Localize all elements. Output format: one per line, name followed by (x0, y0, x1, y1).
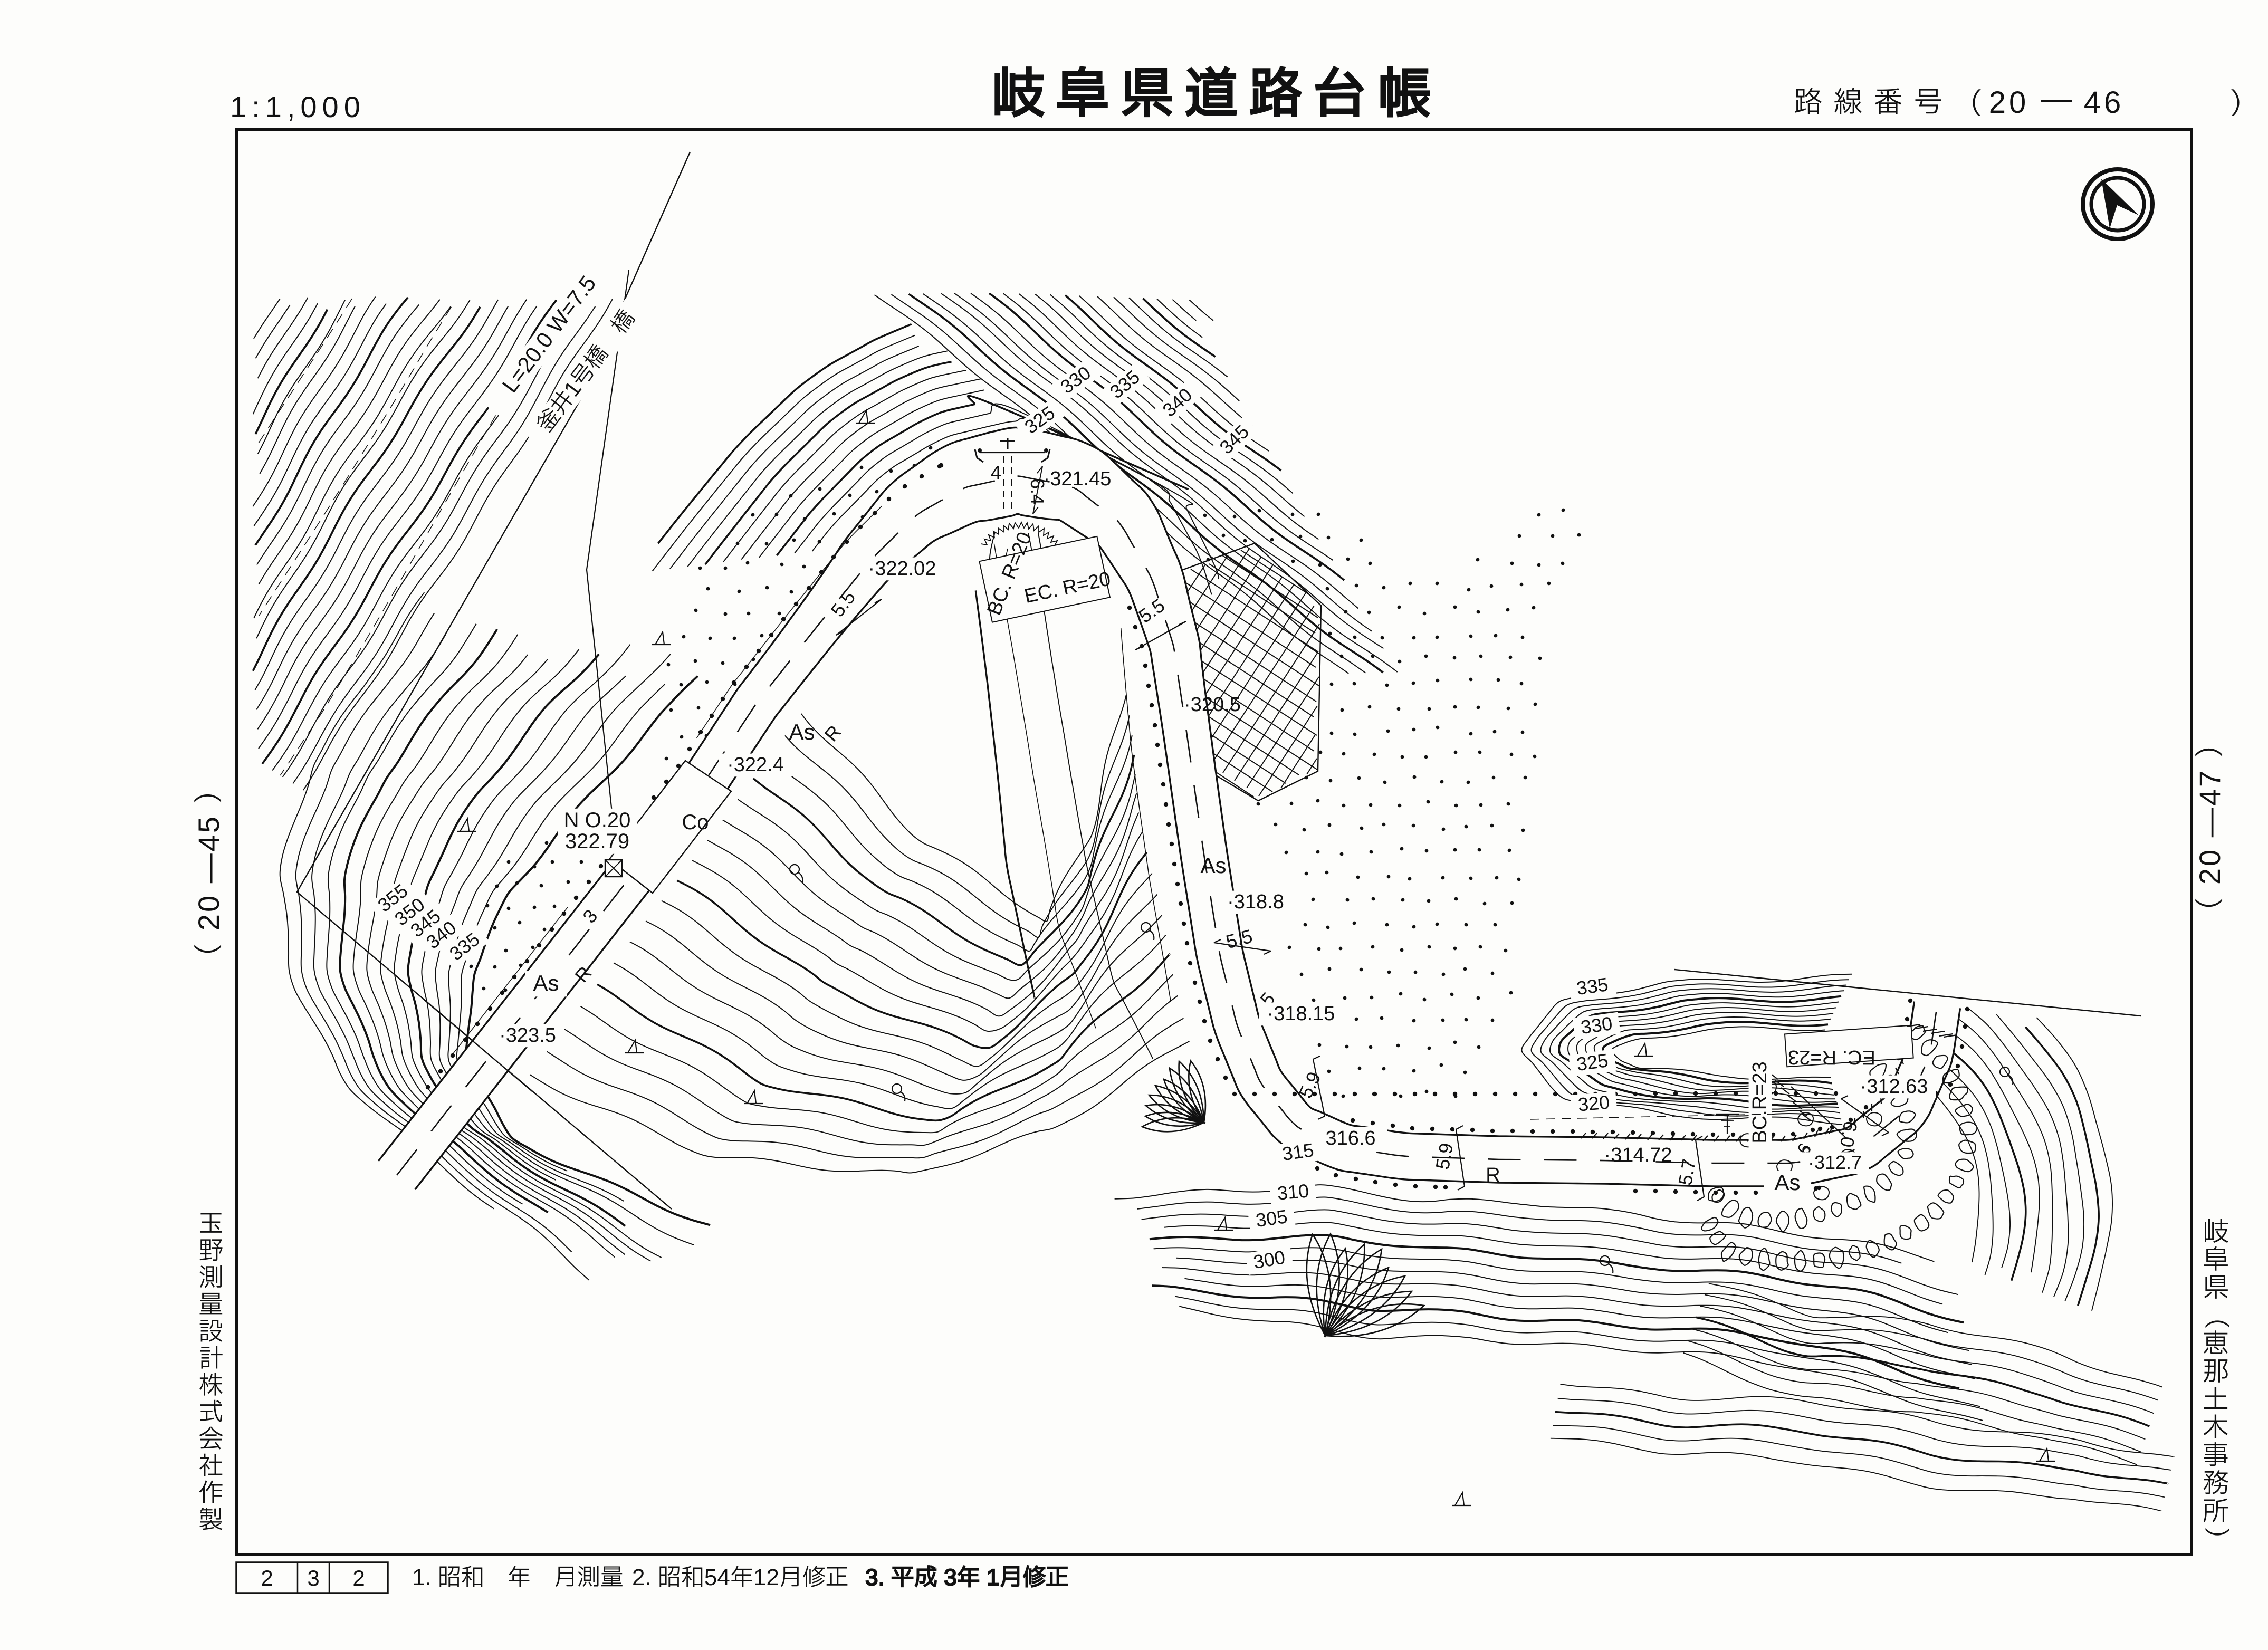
svg-text:·322.02: ·322.02 (868, 558, 936, 580)
svg-text:315: 315 (1281, 1139, 1315, 1165)
svg-text:·321.45: ·321.45 (1044, 468, 1112, 490)
svg-text:）: ） (2196, 1527, 2235, 1553)
svg-text:BC.R=23: BC.R=23 (1749, 1061, 1771, 1143)
svg-text:3. 平成 3年 1月修正: 3. 平成 3年 1月修正 (865, 1565, 1069, 1590)
svg-text:製: 製 (199, 1502, 224, 1539)
svg-text:—: — (2041, 81, 2072, 116)
svg-text:R: R (1486, 1164, 1500, 1186)
svg-text:1:1,000: 1:1,000 (230, 90, 366, 123)
svg-text:322.79: 322.79 (565, 830, 629, 853)
svg-text:·322.4: ·322.4 (727, 754, 784, 776)
svg-text:310: 310 (1276, 1180, 1309, 1204)
svg-text:所: 所 (2203, 1492, 2229, 1532)
svg-text:）: ） (2229, 83, 2259, 127)
svg-text:330: 330 (1580, 1012, 1614, 1038)
svg-text:5.9: 5.9 (1431, 1141, 1457, 1171)
svg-text:1. 昭和 年 月測量: 1. 昭和 年 月測量 (412, 1565, 624, 1590)
svg-text:2. 昭和54年12月修正: 2. 昭和54年12月修正 (632, 1565, 849, 1590)
svg-text:·318.8: ·318.8 (1227, 891, 1284, 913)
svg-text:As: As (789, 720, 815, 744)
svg-text:6.0: 6.0 (1836, 1119, 1862, 1149)
svg-text:As: As (1774, 1170, 1800, 1195)
svg-text:2: 2 (261, 1566, 273, 1590)
svg-text:岐阜県道路台帳: 岐阜県道路台帳 (992, 56, 1442, 135)
svg-text:46: 46 (2084, 85, 2125, 120)
svg-text:335: 335 (1575, 973, 1610, 999)
svg-text:路線番号: 路線番号 (1794, 82, 1954, 124)
svg-text:·320.5: ·320.5 (1184, 694, 1241, 716)
svg-text:·323.5: ·323.5 (499, 1024, 556, 1047)
svg-text:316.6: 316.6 (1325, 1127, 1375, 1149)
svg-text:·312.63: ·312.63 (1860, 1076, 1928, 1098)
svg-text:320: 320 (1577, 1091, 1610, 1116)
svg-text:As: As (1200, 853, 1226, 878)
svg-text:（ 20 —45 ）: （ 20 —45 ） (192, 772, 225, 972)
svg-text:325: 325 (1575, 1049, 1610, 1075)
svg-text:県: 県 (2203, 1269, 2229, 1308)
svg-text:2: 2 (352, 1566, 365, 1590)
svg-text:20: 20 (1989, 85, 2030, 120)
svg-text:3: 3 (307, 1566, 319, 1590)
svg-text:·314.72: ·314.72 (1604, 1144, 1672, 1166)
svg-text:·312.7: ·312.7 (1808, 1152, 1862, 1173)
svg-text:EC. R=23: EC. R=23 (1788, 1046, 1875, 1068)
svg-text:305: 305 (1255, 1205, 1289, 1231)
svg-text:·318.15: ·318.15 (1267, 1003, 1335, 1025)
svg-text:Co: Co (682, 811, 709, 834)
svg-text:N O.20: N O.20 (564, 809, 631, 832)
svg-text:5.7: 5.7 (1674, 1157, 1700, 1187)
svg-text:（: （ (1953, 83, 1983, 127)
svg-text:4: 4 (991, 462, 1001, 483)
svg-text:As: As (533, 971, 559, 995)
svg-text:（ 20 —47 ）: （ 20 —47 ） (2193, 726, 2226, 926)
